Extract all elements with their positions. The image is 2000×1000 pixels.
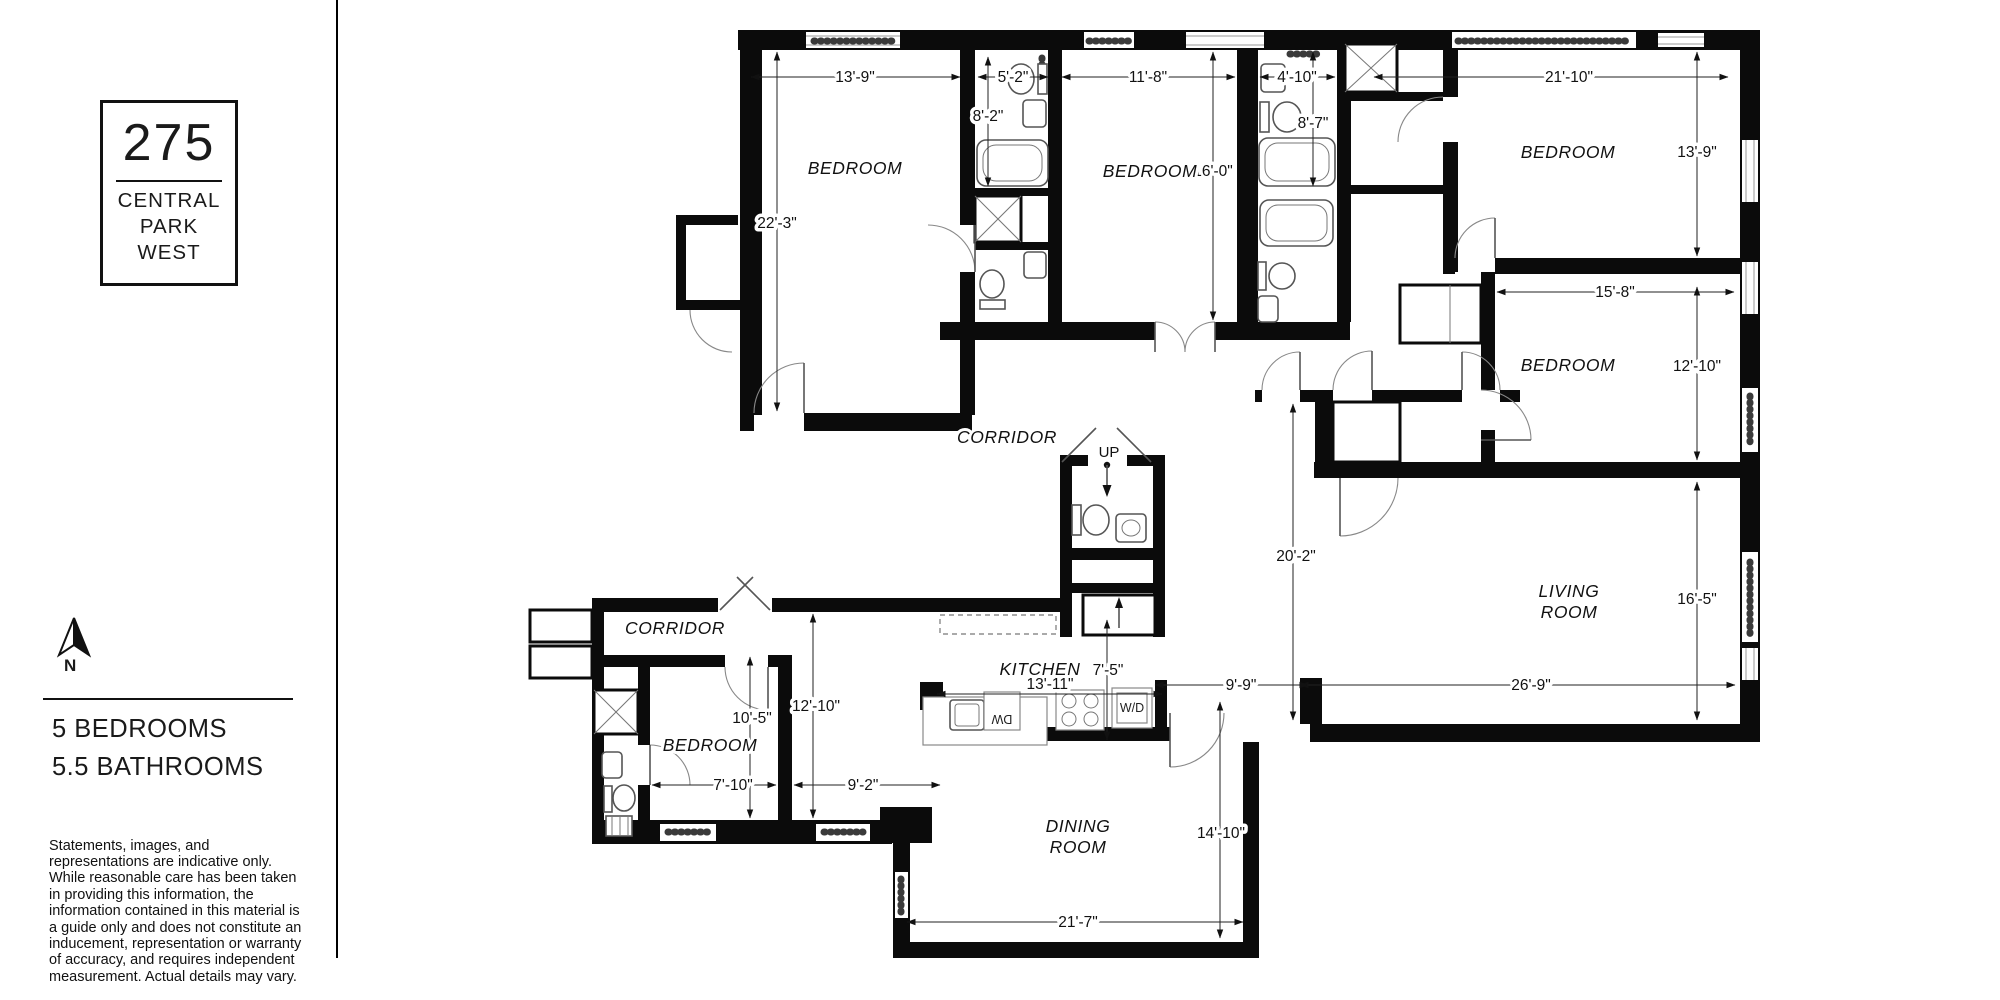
- stairs-up: [1103, 462, 1112, 497]
- dim-bath1-width: 5'-2": [998, 69, 1029, 86]
- dim-bedroom-bl-width: 7'-10": [713, 777, 752, 794]
- dim-bedroom-tr-width: 21'-10": [1545, 69, 1593, 86]
- dim-bedroom-tl-width: 13'-9": [835, 69, 874, 86]
- room-corridor-upper: CORRIDOR: [957, 427, 1057, 447]
- room-living-line1: LIVING: [1539, 581, 1600, 601]
- dimension-lines: [652, 52, 1735, 938]
- dim-bedroom-tl-height: 22'-3": [757, 215, 796, 232]
- dim-hall-height: 20'-2": [1276, 548, 1315, 565]
- dim-hall-width: 9'-9": [1226, 677, 1257, 694]
- dim-kitchen-depth: 7'-5": [1093, 662, 1124, 679]
- dim-bedroom-mr-width: 15'-8": [1595, 284, 1634, 301]
- dim-bedroom-tm-height: 16'-0": [1193, 163, 1232, 180]
- dim-bath2-height: 8'-7": [1298, 115, 1329, 132]
- room-bedroom-top-left: BEDROOM: [808, 158, 903, 178]
- room-dining-line1: DINING: [1046, 816, 1111, 836]
- dim-living-height: 16'-5": [1677, 591, 1716, 608]
- washer-dryer-label: W/D: [1120, 701, 1144, 715]
- dim-bedroom-bl-height: 10'-5": [732, 710, 771, 727]
- room-living-line2: ROOM: [1541, 602, 1598, 622]
- room-bedroom-bottom-left: BEDROOM: [663, 735, 758, 755]
- dim-foyer-height: 12'-10": [792, 698, 840, 715]
- room-kitchen: KITCHEN: [999, 659, 1080, 679]
- dim-bath2-width: 4'-10": [1277, 69, 1316, 86]
- room-dining-line2: ROOM: [1050, 837, 1107, 857]
- dim-dining-height: 14'-10": [1197, 825, 1245, 842]
- dim-living-width: 26'-9": [1511, 677, 1550, 694]
- room-corridor-lower: CORRIDOR: [625, 618, 725, 638]
- dim-bedroom-tr-height: 13'-9": [1677, 144, 1716, 161]
- dim-foyer-width: 9'-2": [848, 777, 879, 794]
- dimension-labels: 13'-9" 22'-3" 5'-2" 8'-2" 11'-8" 16'-0" …: [713, 69, 1721, 931]
- dim-dining-width: 21'-7": [1058, 914, 1097, 931]
- room-labels: BEDROOM BEDROOM BEDROOM BEDROOM BEDROOM …: [625, 142, 1615, 857]
- stairs-up-label: UP: [1099, 444, 1120, 461]
- dishwasher-label: DW: [991, 712, 1012, 726]
- room-bedroom-mid-right: BEDROOM: [1521, 355, 1616, 375]
- room-bedroom-top-right: BEDROOM: [1521, 142, 1616, 162]
- dim-bedroom-tm-width: 11'-8": [1129, 69, 1167, 86]
- dim-bath1-height: 8'-2": [973, 108, 1004, 125]
- room-bedroom-top-middle: BEDROOM: [1103, 161, 1198, 181]
- dim-bedroom-mr-height: 12'-10": [1673, 358, 1721, 375]
- floor-plan: 13'-9" 22'-3" 5'-2" 8'-2" 11'-8" 16'-0" …: [0, 0, 2000, 1000]
